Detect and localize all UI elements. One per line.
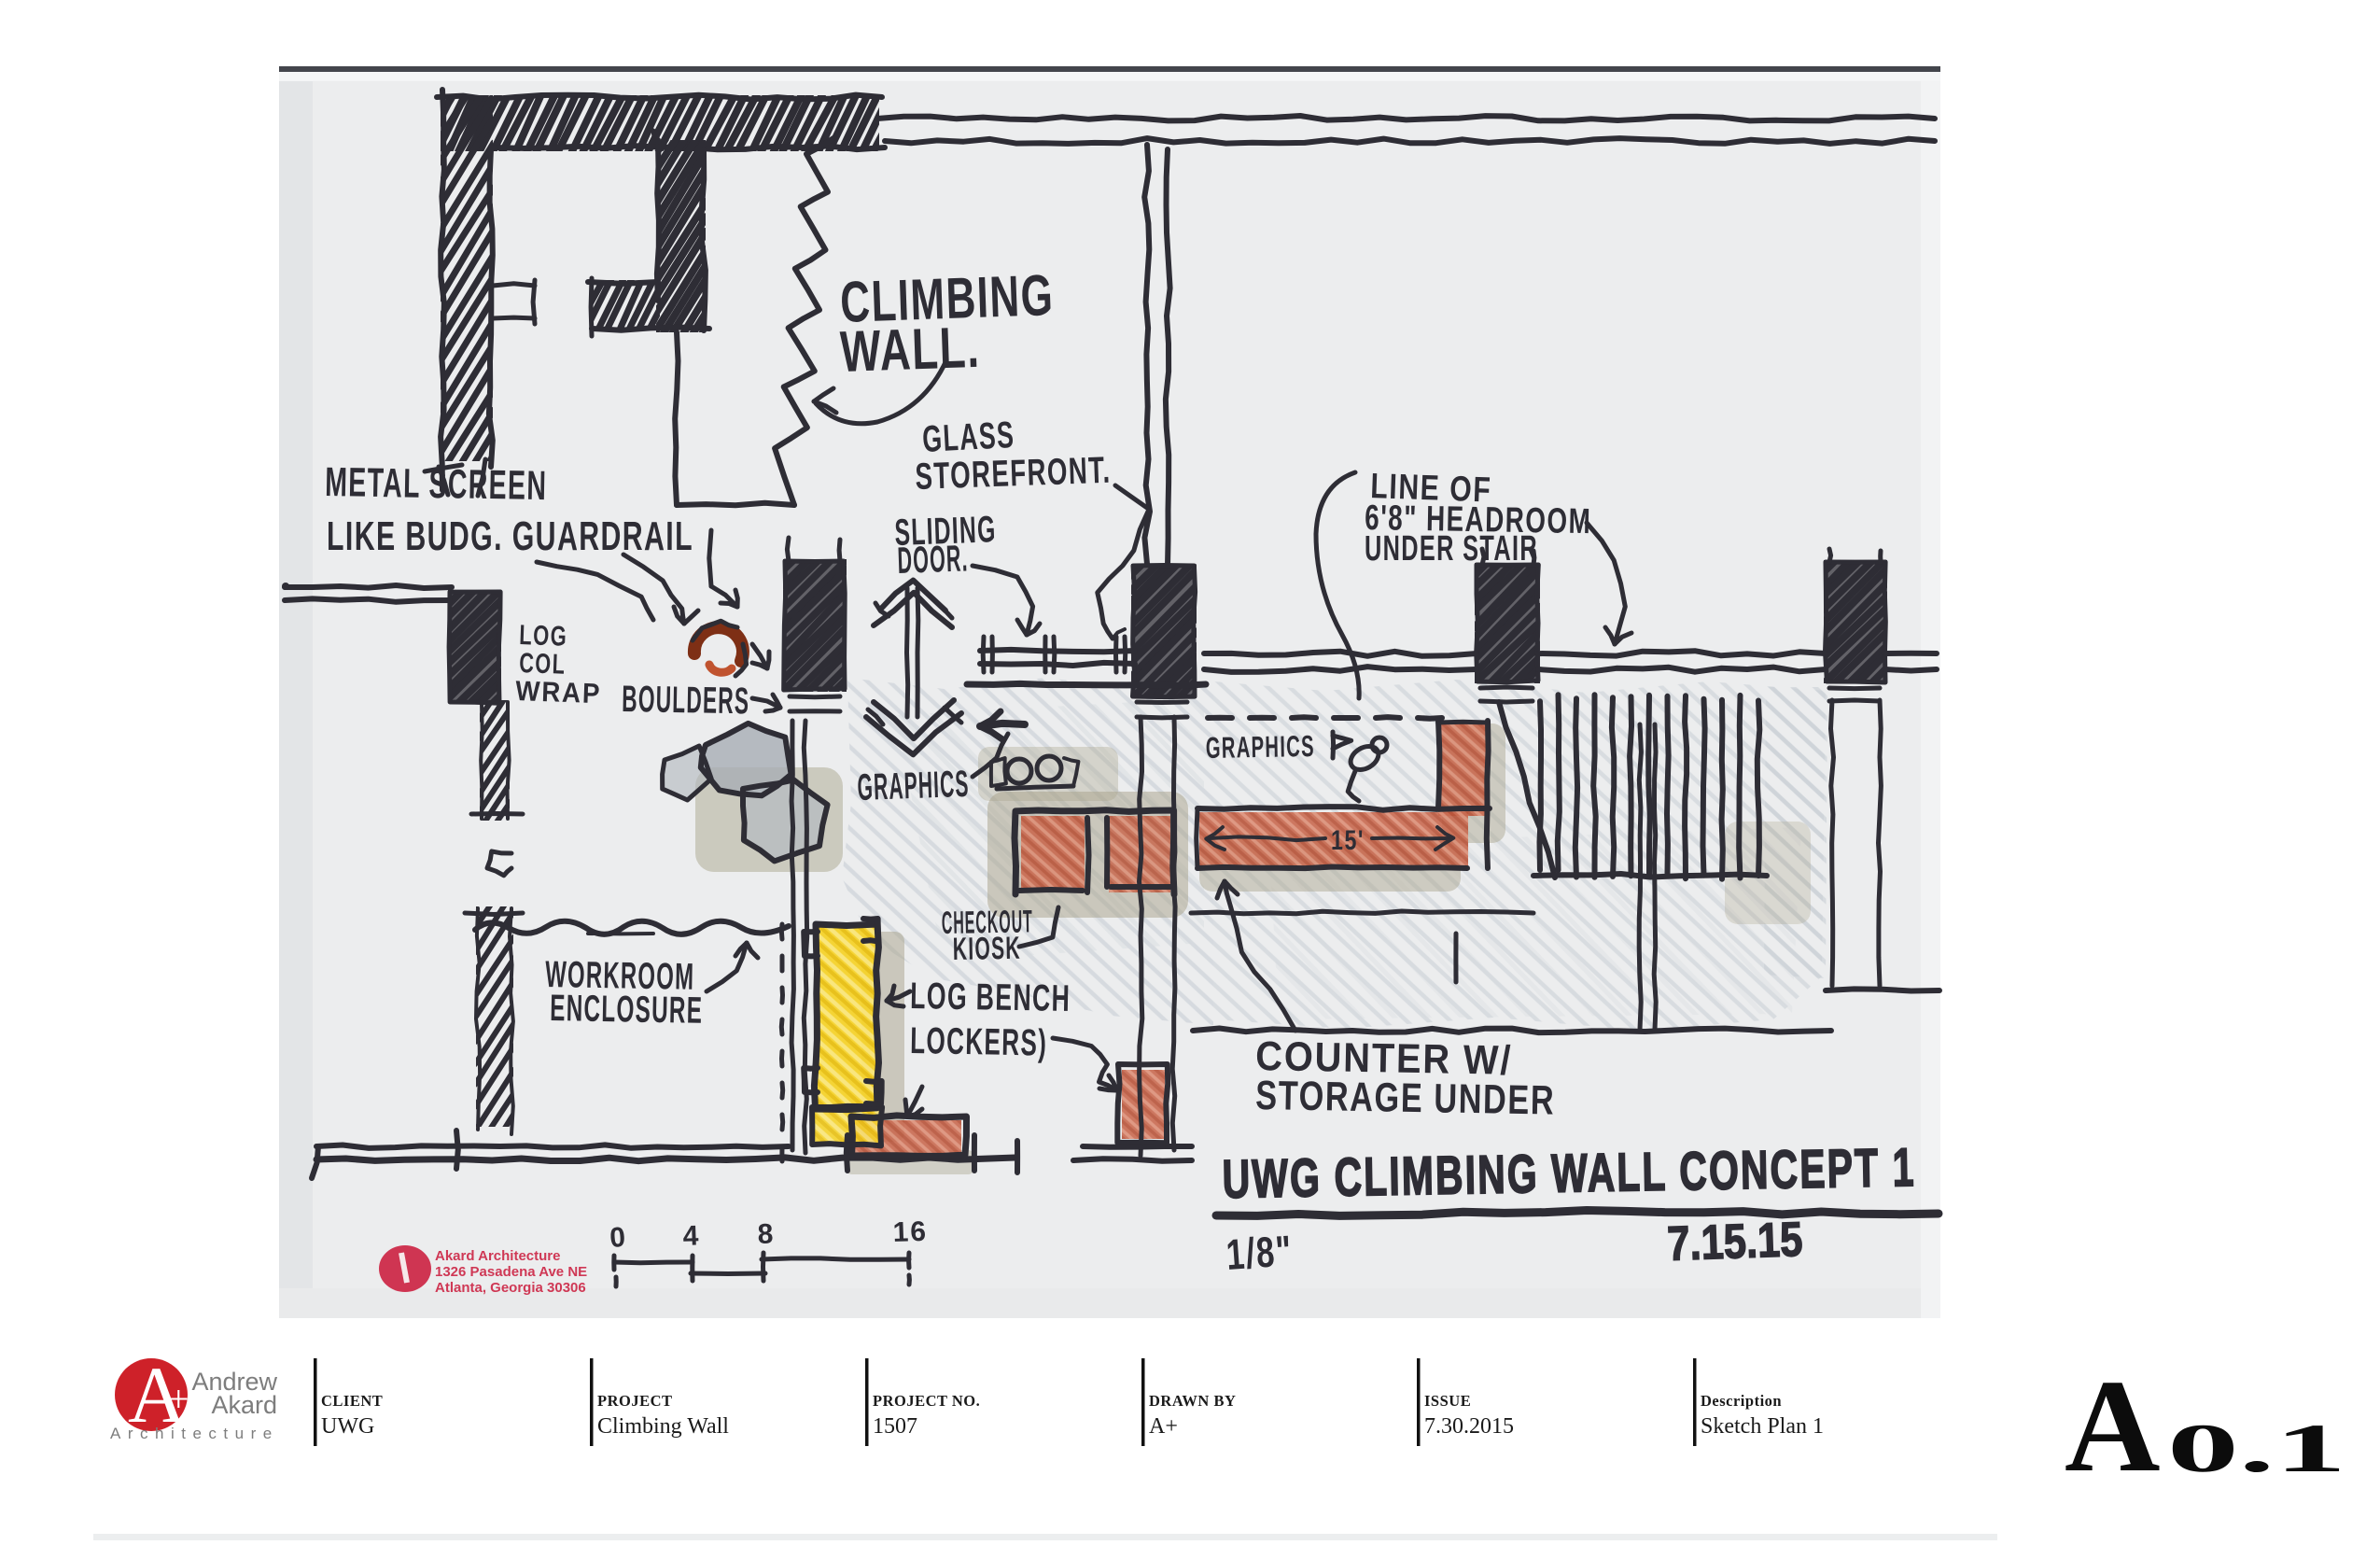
svg-text:CLIENT: CLIENT [321, 1392, 383, 1410]
svg-text:A+: A+ [1149, 1414, 1178, 1439]
svg-text:1326 Pasadena Ave NE: 1326 Pasadena Ave NE [435, 1264, 587, 1280]
svg-text:STOREFRONT.: STOREFRONT. [915, 450, 1112, 498]
svg-text:ISSUE: ISSUE [1424, 1392, 1471, 1410]
svg-text:1/8": 1/8" [1225, 1226, 1294, 1279]
svg-text:ENCLOSURE: ENCLOSURE [550, 988, 704, 1032]
svg-text:UWG CLIMBING WALL CONCEPT 1: UWG CLIMBING WALL CONCEPT 1 [1222, 1137, 1916, 1210]
svg-text:GRAPHICS: GRAPHICS [1205, 729, 1315, 765]
svg-text:LIKE BUDG. GUARDRAIL: LIKE BUDG. GUARDRAIL [327, 513, 693, 559]
svg-text:Description: Description [1701, 1392, 1782, 1410]
svg-text:+: + [168, 1378, 189, 1420]
svg-text:GRAPHICS: GRAPHICS [857, 764, 970, 808]
svg-text:Akard Architecture: Akard Architecture [435, 1248, 561, 1264]
svg-text:16: 16 [892, 1216, 929, 1248]
svg-text:WRAP: WRAP [515, 676, 602, 709]
svg-text:1507: 1507 [873, 1414, 917, 1439]
svg-text:Sketch Plan 1: Sketch Plan 1 [1701, 1414, 1824, 1439]
svg-text:Architecture: Architecture [110, 1425, 279, 1442]
svg-text:PROJECT: PROJECT [597, 1392, 673, 1410]
svg-text:PROJECT NO.: PROJECT NO. [873, 1392, 980, 1410]
svg-text:UWG: UWG [321, 1414, 374, 1439]
svg-text:7.30.2015: 7.30.2015 [1424, 1414, 1514, 1439]
svg-text:8: 8 [757, 1218, 776, 1250]
svg-text:Atlanta, Georgia 30306: Atlanta, Georgia 30306 [435, 1280, 586, 1296]
svg-text:METAL SCREEN: METAL SCREEN [325, 459, 548, 509]
svg-text:0.1: 0.1 [2167, 1411, 2346, 1487]
svg-text:LOG BENCH: LOG BENCH [910, 976, 1071, 1019]
svg-text:DOOR.: DOOR. [897, 538, 969, 582]
svg-text:15': 15' [1331, 825, 1365, 856]
svg-text:KIOSK: KIOSK [952, 931, 1021, 967]
svg-text:4: 4 [682, 1220, 701, 1252]
svg-text:Akard: Akard [211, 1391, 277, 1419]
svg-text:0: 0 [609, 1222, 628, 1254]
svg-text:BOULDERS: BOULDERS [622, 679, 750, 722]
svg-text:WALL.: WALL. [839, 316, 981, 385]
svg-text:UNDER STAIR: UNDER STAIR [1365, 529, 1538, 569]
svg-text:7.15.15: 7.15.15 [1666, 1213, 1803, 1271]
svg-text:STORAGE UNDER: STORAGE UNDER [1255, 1073, 1556, 1124]
svg-text:A: A [2065, 1352, 2161, 1499]
svg-text:Climbing Wall: Climbing Wall [597, 1414, 729, 1439]
svg-text:DRAWN BY: DRAWN BY [1149, 1392, 1236, 1410]
svg-text:LOCKERS): LOCKERS) [910, 1020, 1048, 1064]
